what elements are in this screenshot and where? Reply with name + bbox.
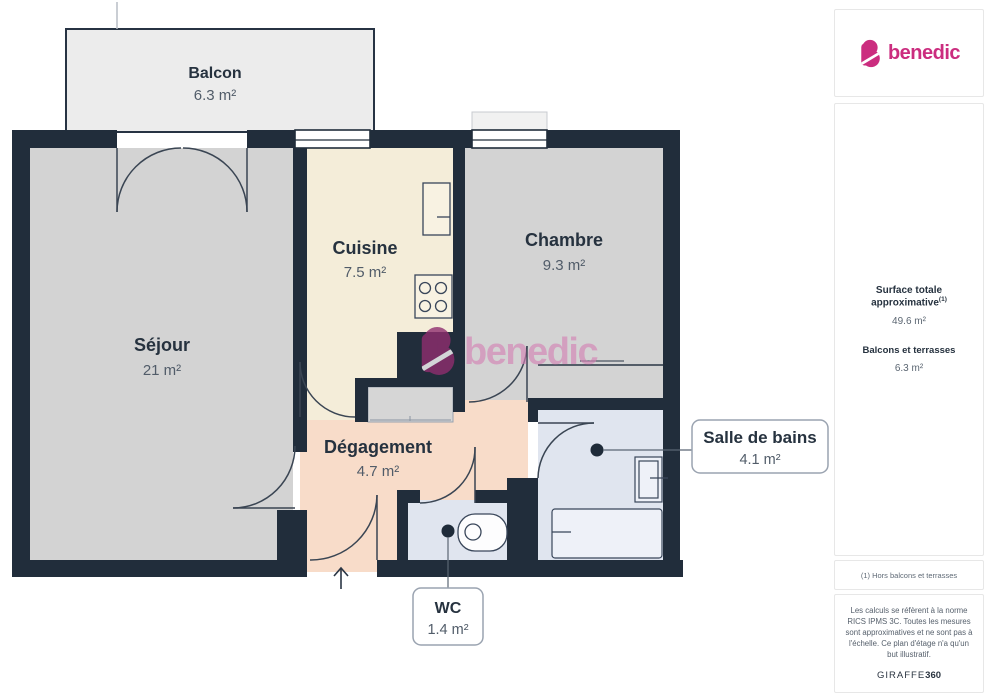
salle-de-bains-label: Salle de bains — [703, 428, 816, 447]
brand-giraffe: GIRAFFE — [877, 670, 925, 681]
chambre-label: Chambre — [525, 230, 603, 250]
wall-segment — [12, 560, 307, 577]
closet-degagement — [368, 387, 453, 422]
degagement-label: Dégagement — [324, 437, 432, 457]
sejour-area: 21 m² — [143, 362, 181, 379]
wall-segment — [247, 130, 295, 148]
floor-plan-page: benedic Balcon 6.3 m² Séjour 21 m² Cuisi… — [0, 0, 990, 700]
balcon-label: Balcon — [188, 65, 241, 82]
cuisine-label: Cuisine — [332, 238, 397, 258]
wall-segment — [528, 410, 538, 422]
wall-segment — [377, 560, 683, 577]
balcony-title: Balcons et terrasses — [863, 345, 956, 356]
wall-segment — [507, 478, 538, 560]
window-sill — [472, 112, 547, 130]
footnote-box: (1) Hors balcons et terrasses — [834, 560, 984, 590]
leader-dot — [442, 525, 455, 538]
wall-segment — [475, 490, 507, 503]
salle-de-bains-area: 4.1 m² — [739, 452, 780, 468]
surface-summary-box: Surface totale approximative(1) 49.6 m² … — [834, 103, 984, 556]
leader-dot — [591, 444, 604, 457]
floor-plan: benedic Balcon 6.3 m² Séjour 21 m² Cuisi… — [0, 0, 830, 700]
footnote-text: (1) Hors balcons et terrasses — [861, 571, 957, 580]
surface-title: Surface totale approximative(1) — [839, 285, 979, 308]
kitchen-counter-icon — [423, 183, 450, 235]
disclaimer-box: Les calculs se réfèrent à la norme RICS … — [834, 594, 984, 693]
wall-segment — [355, 378, 397, 387]
giraffe360-brand: GIRAFFE360 — [877, 670, 941, 681]
window-icon — [295, 130, 370, 148]
watermark: benedic — [414, 327, 598, 375]
bathtub-icon — [552, 509, 662, 558]
degagement-area: 4.7 m² — [357, 463, 400, 480]
watermark-text: benedic — [464, 331, 598, 373]
wall-segment — [408, 490, 420, 503]
cuisine-area: 7.5 m² — [344, 264, 387, 281]
stove-icon — [415, 275, 452, 318]
logo-box: benedic — [834, 9, 984, 97]
surface-footnote-ref: (1) — [939, 296, 947, 303]
window-icon — [472, 130, 547, 148]
wall-segment — [528, 398, 663, 410]
chambre-area: 9.3 m² — [543, 257, 586, 274]
sejour-label: Séjour — [134, 335, 190, 355]
toilet-icon — [458, 514, 507, 551]
balcon-area: 6.3 m² — [194, 87, 237, 104]
wall-segment — [277, 510, 307, 560]
balcony-value: 6.3 m² — [895, 363, 923, 374]
wall-segment — [355, 387, 368, 422]
wall-segment — [12, 130, 30, 577]
wall-segment — [663, 130, 680, 577]
wall-segment — [370, 130, 472, 148]
logo-text: benedic — [888, 42, 960, 65]
wc-label: WC — [435, 600, 462, 617]
wall-segment — [397, 490, 408, 560]
wc-area: 1.4 m² — [427, 622, 468, 638]
disclaimer-text: Les calculs se réfèrent à la norme RICS … — [845, 605, 973, 660]
benedic-logo-icon — [858, 39, 882, 68]
wall-segment — [547, 130, 680, 148]
brand-360: 360 — [925, 670, 941, 681]
surface-value: 49.6 m² — [892, 316, 926, 327]
